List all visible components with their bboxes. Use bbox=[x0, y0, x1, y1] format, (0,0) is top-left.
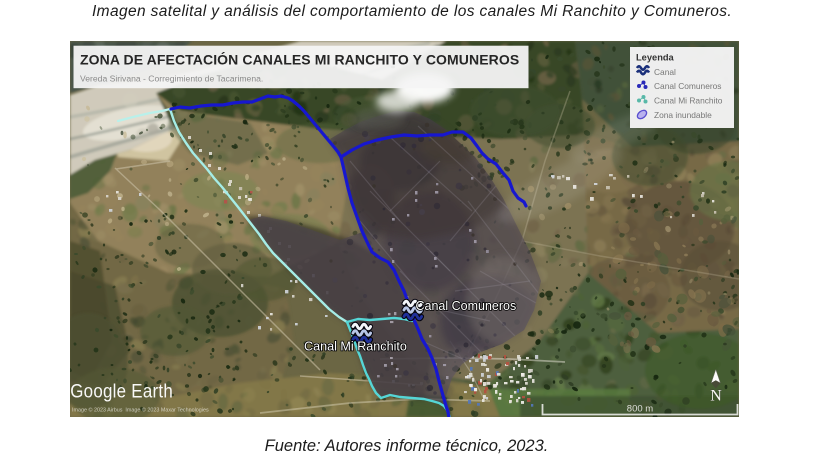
svg-text:Google Earth: Google Earth bbox=[70, 379, 173, 402]
svg-text:Canal Comuneros: Canal Comuneros bbox=[654, 81, 722, 91]
svg-text:Zona inundable: Zona inundable bbox=[654, 110, 712, 120]
svg-text:ZONA DE AFECTACIÓN CANALES MI: ZONA DE AFECTACIÓN CANALES MI RANCHITO Y… bbox=[80, 51, 519, 68]
svg-text:800 m: 800 m bbox=[627, 403, 653, 414]
svg-text:Image © 2023 Airbus Image © 2: Image © 2023 Airbus Image © 2023 Maxar T… bbox=[72, 407, 209, 414]
svg-text:Leyenda: Leyenda bbox=[636, 53, 675, 63]
svg-text:Canal Mi Ranchito: Canal Mi Ranchito bbox=[654, 96, 723, 106]
svg-text:N: N bbox=[710, 387, 722, 404]
svg-text:Canal Mi Ranchito: Canal Mi Ranchito bbox=[304, 339, 407, 353]
svg-text:Canal Comuneros: Canal Comuneros bbox=[416, 299, 517, 313]
svg-text:Vereda Sirivana - Corregimient: Vereda Sirivana - Corregimiento de Tacar… bbox=[80, 74, 263, 84]
svg-text:Canal: Canal bbox=[654, 67, 676, 77]
